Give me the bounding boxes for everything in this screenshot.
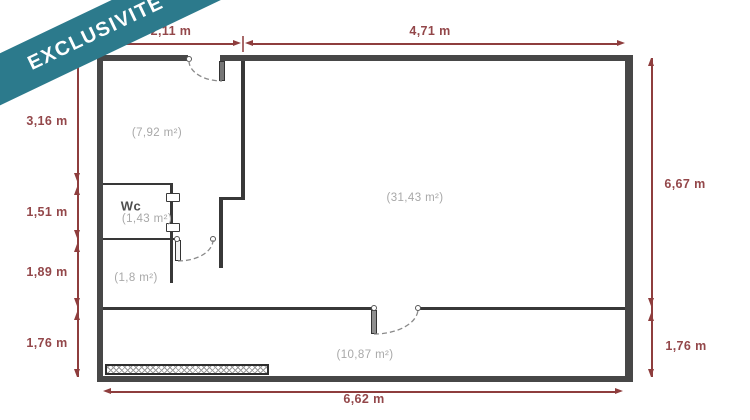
dim-label-right-2: 1,76 m bbox=[665, 339, 706, 353]
dim-line-right bbox=[651, 58, 653, 377]
dim-label-bottom-1: 6,62 m bbox=[343, 392, 384, 406]
dim-arrow-icon bbox=[615, 388, 623, 394]
door-arc-entrance bbox=[189, 61, 222, 81]
dim-arrow-icon bbox=[617, 40, 625, 46]
dim-arrow-icon bbox=[74, 298, 80, 306]
dim-arrow-icon bbox=[74, 173, 80, 181]
dim-arrow-icon bbox=[648, 298, 654, 306]
dim-line-left bbox=[77, 58, 79, 377]
dim-arrow-icon bbox=[74, 244, 80, 252]
door-arc-bottom bbox=[374, 309, 418, 334]
dim-label-left-1: 3,16 m bbox=[26, 114, 67, 128]
hatched-strip bbox=[105, 364, 269, 375]
wc-duct-symbol bbox=[166, 193, 180, 202]
dim-line-top-2 bbox=[250, 43, 619, 45]
room-name-wc: Wc bbox=[121, 199, 142, 214]
dim-label-left-3: 1,89 m bbox=[26, 265, 67, 279]
dim-arrow-icon bbox=[245, 40, 253, 46]
dim-label-right-1: 6,67 m bbox=[664, 177, 705, 191]
dim-tick bbox=[242, 36, 244, 52]
room-area-31-43: (31,43 m²) bbox=[386, 192, 443, 204]
dim-label-left-2: 1,51 m bbox=[26, 205, 67, 219]
room-area-10-87: (10,87 m²) bbox=[336, 349, 393, 361]
dim-arrow-icon bbox=[74, 230, 80, 238]
dim-arrow-icon bbox=[648, 58, 654, 66]
dim-arrow-icon bbox=[74, 312, 80, 320]
room-area-1-8: (1,8 m²) bbox=[114, 272, 157, 284]
dim-arrow-icon bbox=[103, 388, 111, 394]
room-area-7-92: (7,92 m²) bbox=[132, 127, 182, 139]
dim-label-left-4: 1,76 m bbox=[26, 336, 67, 350]
dim-arrow-icon bbox=[233, 40, 241, 46]
door-arc-hall bbox=[178, 240, 213, 261]
dim-label-top-2: 4,71 m bbox=[409, 24, 450, 38]
dim-arrow-icon bbox=[648, 369, 654, 377]
dim-arrow-icon bbox=[74, 369, 80, 377]
room-area-wc: (1,43 m²) bbox=[122, 213, 172, 225]
floor-plan: 2,11 m 4,71 m 3,16 m 1,51 m 1,89 m 1,76 … bbox=[0, 0, 750, 420]
dim-arrow-icon bbox=[74, 187, 80, 195]
dim-arrow-icon bbox=[648, 313, 654, 321]
